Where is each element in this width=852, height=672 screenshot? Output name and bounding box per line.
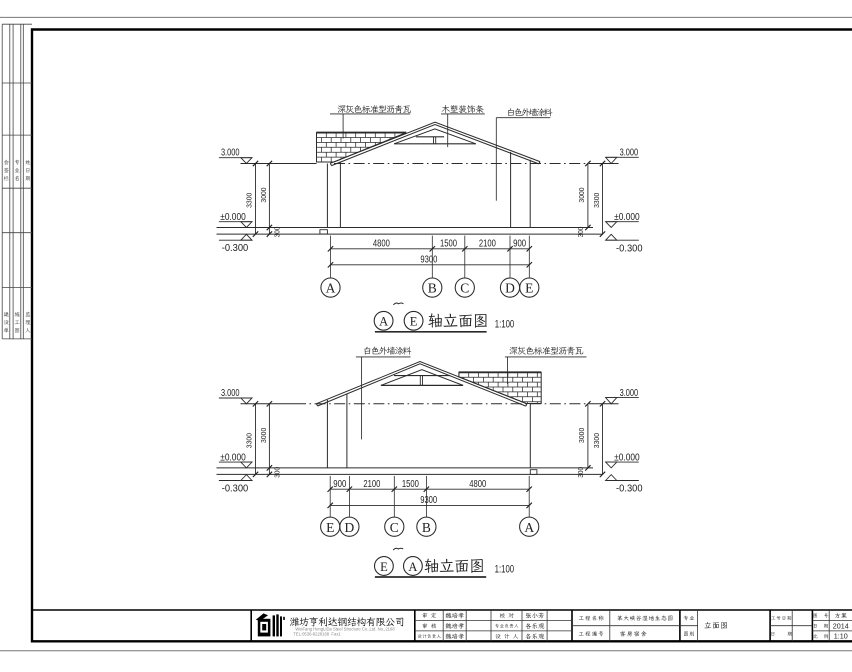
svg-text:300: 300 xyxy=(576,227,585,238)
svg-text:3300: 3300 xyxy=(592,433,601,448)
svg-text:3300: 3300 xyxy=(245,433,254,448)
svg-text:D: D xyxy=(345,520,355,535)
svg-text:D: D xyxy=(505,281,515,296)
svg-text:3000: 3000 xyxy=(577,428,586,443)
svg-text:C: C xyxy=(390,520,399,535)
svg-text:900: 900 xyxy=(513,238,526,249)
svg-text:-0.300: -0.300 xyxy=(616,243,643,254)
svg-text:3.000: 3.000 xyxy=(221,148,240,159)
svg-text:1:100: 1:100 xyxy=(495,564,515,576)
svg-text:2100: 2100 xyxy=(479,238,496,249)
svg-text:C: C xyxy=(460,281,469,296)
svg-text:B: B xyxy=(422,520,431,535)
svg-text:E: E xyxy=(525,281,533,296)
svg-text:A: A xyxy=(408,560,417,574)
svg-text:3000: 3000 xyxy=(259,428,268,443)
svg-text:9300: 9300 xyxy=(420,254,437,265)
svg-text:4800: 4800 xyxy=(469,479,486,490)
svg-text:A: A xyxy=(379,315,388,329)
svg-text:1:100: 1:100 xyxy=(495,318,515,330)
svg-text:2100: 2100 xyxy=(363,479,380,490)
svg-text:3000: 3000 xyxy=(577,187,586,202)
svg-text:3.000: 3.000 xyxy=(221,388,240,399)
svg-text:A: A xyxy=(524,520,534,535)
svg-text:900: 900 xyxy=(333,479,346,490)
svg-text:-0.300: -0.300 xyxy=(222,243,249,254)
svg-text:1500: 1500 xyxy=(440,238,457,249)
svg-text:300: 300 xyxy=(576,467,585,478)
svg-text:3300: 3300 xyxy=(245,193,254,208)
svg-text:4800: 4800 xyxy=(373,238,390,249)
svg-text:A: A xyxy=(326,281,336,296)
svg-text:3300: 3300 xyxy=(592,193,601,208)
svg-text:-0.300: -0.300 xyxy=(222,483,249,494)
svg-text:300: 300 xyxy=(272,467,281,478)
svg-text:1500: 1500 xyxy=(402,479,419,490)
svg-text:TEL:0536-8228168 Fax1: TEL:0536-8228168 Fax1 xyxy=(293,631,341,636)
svg-text:9300: 9300 xyxy=(420,495,437,506)
svg-text:E: E xyxy=(326,520,334,535)
svg-text:B: B xyxy=(428,281,437,296)
svg-text:E: E xyxy=(410,315,418,329)
svg-text:3000: 3000 xyxy=(259,187,268,202)
svg-text:1:10: 1:10 xyxy=(834,632,848,641)
svg-text:E: E xyxy=(380,560,388,574)
svg-text:300: 300 xyxy=(272,227,281,238)
svg-text:2014: 2014 xyxy=(833,621,849,630)
svg-text:-0.300: -0.300 xyxy=(616,484,643,495)
